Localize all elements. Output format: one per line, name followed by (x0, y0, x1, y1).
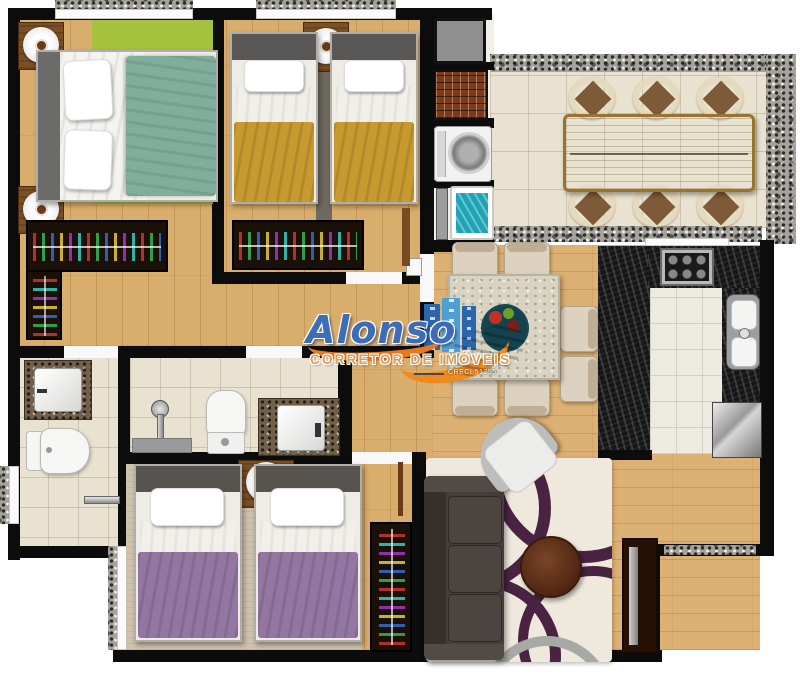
faucet-icon (315, 423, 321, 437)
terrace-granite-edge-right (766, 54, 796, 244)
bedroom3-window-outer (108, 546, 117, 650)
single-bed-yellow-left (230, 32, 318, 204)
washer-drum (448, 132, 490, 174)
apartment-floor-plan: Alonso CORRETOR DE IMÓVEIS CRECI 51295 (0, 0, 800, 691)
bedroom1-window-sill (55, 9, 193, 19)
tv-rack (622, 538, 658, 654)
headboard (38, 52, 60, 200)
bathroom2-vanity-counter (258, 398, 340, 456)
hanging-clothes (239, 232, 357, 260)
bedroom3-door-leaf (398, 462, 403, 516)
sofa-backrest (424, 492, 446, 644)
refrigerator (712, 402, 762, 458)
headboard (232, 34, 316, 60)
stove-burners (665, 253, 709, 281)
bedroom2-wardrobe (232, 220, 364, 270)
sofa-armrest (424, 644, 504, 660)
tub-water (456, 193, 488, 233)
toilet-flush-button (46, 447, 52, 453)
single-bed-purple-left (134, 464, 242, 642)
hanging-clothes (33, 276, 57, 336)
watermark: Alonso CORRETOR DE IMÓVEIS CRECI 51295 (296, 294, 546, 394)
bedroom2-window-outer (256, 0, 396, 9)
pillow (244, 60, 304, 92)
watermark-license: CRECI 51295 (448, 369, 497, 376)
double-bed (36, 50, 218, 202)
bedroom1-wardrobe (26, 220, 168, 272)
watermark-brand: Alonso (306, 308, 456, 352)
chair (560, 306, 598, 352)
hanging-clothes (33, 233, 161, 261)
bedroom3-door-opening (352, 452, 412, 464)
watermark-tagline: CORRETOR DE IMÓVEIS (310, 352, 511, 367)
teal-blanket (126, 56, 216, 196)
sofa-cushion (448, 594, 502, 642)
wall (760, 240, 774, 556)
single-bed-purple-right (254, 464, 362, 642)
sink-basin (731, 337, 757, 367)
bedroom1-door-opening (64, 346, 118, 358)
hanging-clothes (379, 529, 405, 645)
bathroom1-window-outer (0, 466, 9, 524)
kitchen-counter-left (598, 246, 650, 460)
table-grain-crack (570, 153, 748, 155)
faucet-icon (37, 389, 47, 393)
rustic-dining-table (563, 114, 755, 192)
pillow (150, 488, 224, 526)
bedroom3-wardrobe (370, 522, 412, 652)
laundry-tub (450, 186, 494, 240)
chair (560, 356, 598, 402)
bath-mat (132, 438, 192, 453)
washing-machine (434, 126, 492, 182)
toilet (206, 390, 244, 452)
single-bed-yellow-right (330, 32, 418, 204)
yellow-blanket (334, 122, 414, 202)
faucet-icon (739, 328, 750, 339)
bedroom2-shelf (402, 208, 410, 266)
pillow (63, 129, 113, 191)
stove-cooktop (660, 248, 714, 286)
towel-bar (84, 496, 120, 504)
laundry-door-leaf (436, 188, 448, 240)
pillow (344, 60, 404, 92)
pillow (62, 59, 113, 121)
washer-control-panel (437, 131, 446, 177)
bedroom1-window-outer (55, 0, 193, 9)
bedroom2-door-opening (346, 272, 402, 284)
sofa-cushion (448, 545, 502, 593)
laundry-shelf-rack (434, 70, 488, 120)
headboard (332, 34, 416, 60)
kitchen-sink (726, 294, 760, 370)
bathroom1-vanity-counter (24, 360, 92, 420)
bedroom1-wardrobe-side (26, 270, 62, 340)
pillow (270, 488, 344, 526)
sofa-cushion (448, 496, 502, 544)
purple-blanket (138, 552, 238, 638)
sofa (424, 476, 504, 660)
watermark-divider (414, 373, 444, 375)
sink-basin (731, 300, 757, 330)
bathroom1-window-sill (9, 466, 19, 524)
yellow-blanket (234, 122, 314, 202)
bathroom2-door-opening (246, 346, 302, 358)
laundry-cabinet (434, 18, 486, 64)
round-coffee-table (520, 536, 582, 598)
terrace-granite-edge-top (490, 54, 772, 72)
toilet-bowl (206, 390, 246, 436)
bedroom2-window-sill (256, 9, 396, 19)
living-window-sill (664, 545, 756, 555)
toilet-flush-button (221, 438, 229, 446)
kitchen-passthrough-sill (645, 238, 729, 246)
purple-blanket (258, 552, 358, 638)
tv-screen (629, 547, 638, 645)
toilet (26, 428, 88, 472)
